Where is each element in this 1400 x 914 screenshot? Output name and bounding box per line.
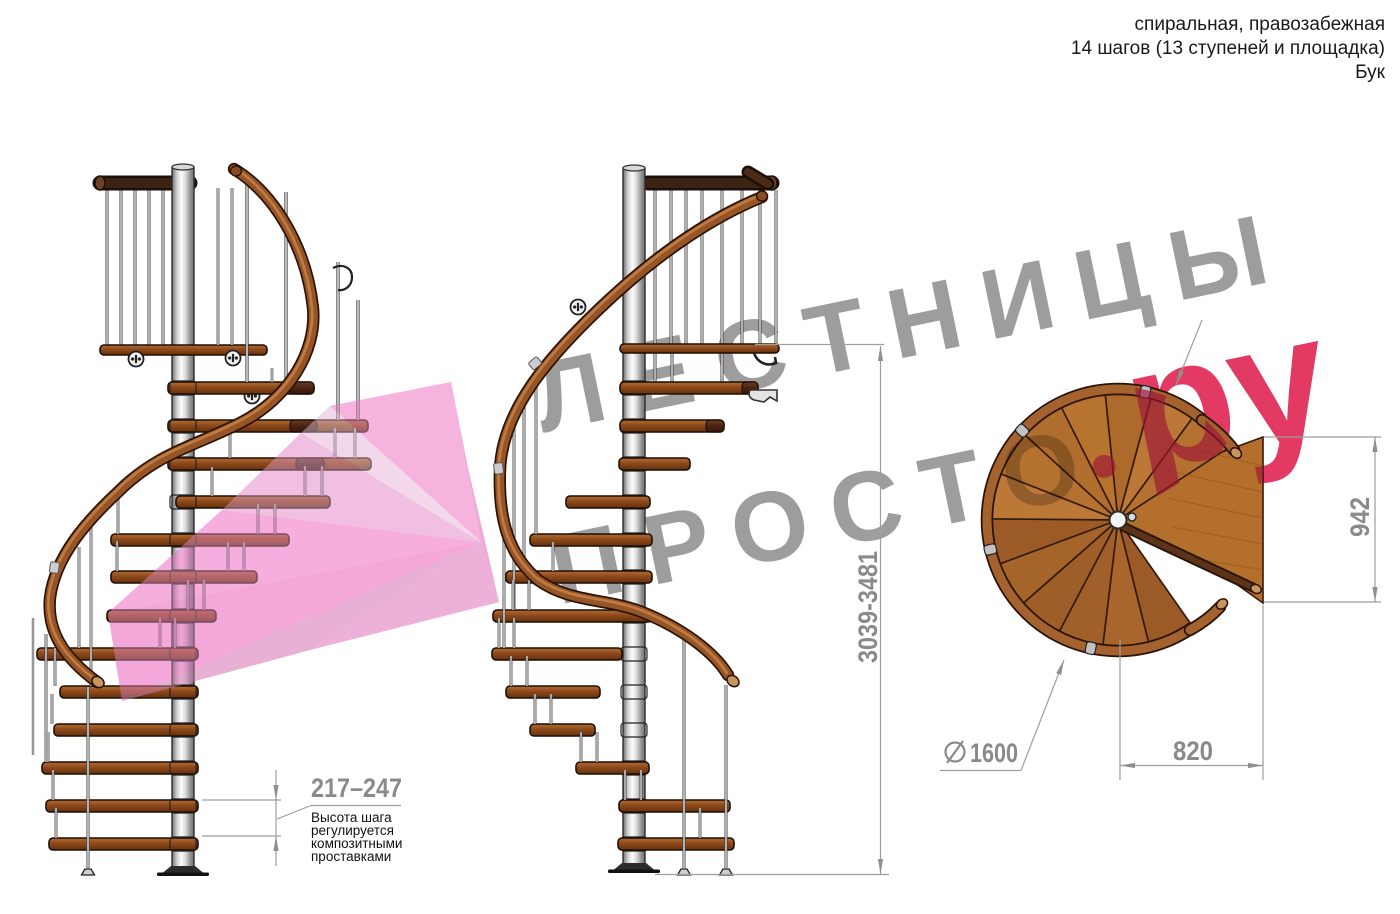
svg-text:Бук: Бук bbox=[1355, 62, 1386, 83]
svg-text:217–247: 217–247 bbox=[311, 773, 402, 803]
svg-text:спиральная, правозабежная: спиральная, правозабежная bbox=[1135, 14, 1385, 35]
svg-text:942: 942 bbox=[1345, 497, 1375, 537]
svg-text:проставками: проставками bbox=[311, 849, 391, 864]
svg-text:14 шагов (13 ступеней и площад: 14 шагов (13 ступеней и площадка) bbox=[1071, 38, 1385, 59]
svg-text:820: 820 bbox=[1173, 736, 1213, 766]
svg-text:1600: 1600 bbox=[970, 738, 1018, 768]
svg-text:3039-3481: 3039-3481 bbox=[853, 551, 883, 663]
